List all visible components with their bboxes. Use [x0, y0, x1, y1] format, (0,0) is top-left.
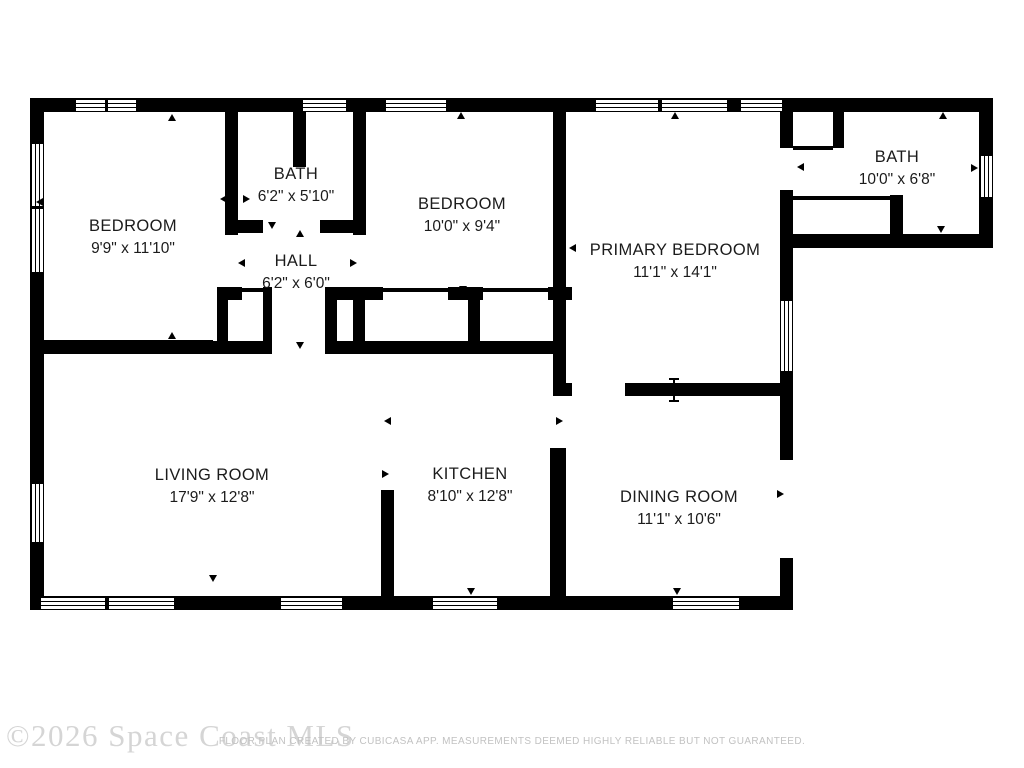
- window: [31, 483, 44, 543]
- room-label-primary-bedroom: PRIMARY BEDROOM 11'1" x 14'1": [590, 241, 760, 282]
- room-dimensions: 10'0" x 6'8": [859, 171, 935, 189]
- marker-icon: [168, 114, 176, 121]
- room-label-bath2: BATH 10'0" x 6'8": [859, 148, 935, 189]
- tub-edge: [793, 196, 890, 200]
- marker-icon: [939, 112, 947, 119]
- room-name: LIVING ROOM: [155, 466, 269, 485]
- wall-closet-small-bottom: [213, 341, 272, 354]
- wall-bath2-closet-stub: [833, 110, 844, 148]
- room-label-bedroom1: BEDROOM 9'9" x 11'10": [89, 217, 177, 258]
- marker-icon: [777, 490, 784, 498]
- wall-kitchen-stub: [381, 490, 394, 596]
- marker-icon: [36, 468, 43, 476]
- room-name: BATH: [859, 148, 935, 167]
- wall-band-b: [325, 287, 383, 300]
- marker-icon: [467, 588, 475, 595]
- marker-icon: [569, 244, 576, 252]
- marker-icon: [243, 195, 250, 203]
- bath2-closet-door: [793, 146, 833, 150]
- marker-icon: [36, 198, 43, 206]
- room-label-hall: HALL 6'2" x 6'0": [262, 252, 330, 293]
- marker-icon: [350, 259, 357, 267]
- marker-icon: [238, 259, 245, 267]
- window: [740, 99, 783, 112]
- wall-bedroom1-bottom: [30, 340, 213, 354]
- window: [780, 300, 793, 372]
- room-label-kitchen: KITCHEN 8'10" x 12'8": [427, 465, 512, 506]
- marker-icon: [459, 286, 467, 293]
- marker-icon: [384, 417, 391, 425]
- marker-icon: [556, 417, 563, 425]
- marker-icon: [797, 163, 804, 171]
- wall-bath2-entry-upper: [780, 110, 793, 148]
- wall-bedroom1-right: [225, 110, 238, 235]
- wall-primary-bottom: [625, 383, 793, 396]
- room-label-dining-room: DINING ROOM 11'1" x 10'6": [620, 488, 738, 529]
- marker-icon: [220, 195, 227, 203]
- room-dimensions: 8'10" x 12'8": [427, 488, 512, 506]
- wall-wing-bottom: [780, 234, 993, 248]
- marker-icon: [296, 342, 304, 349]
- room-name: BATH: [258, 165, 334, 184]
- marker-icon: [937, 226, 945, 233]
- room-name: KITCHEN: [427, 465, 512, 484]
- room-label-living-room: LIVING ROOM 17'9" x 12'8": [155, 466, 269, 507]
- wall-bath2-entry-lower: [780, 190, 793, 248]
- marker-icon: [209, 575, 217, 582]
- window: [280, 597, 343, 610]
- room-dimensions: 11'1" x 10'6": [620, 511, 738, 529]
- wall-primary-bottom-stub: [553, 383, 572, 396]
- wall-bath1-divider: [293, 110, 306, 167]
- room-name: DINING ROOM: [620, 488, 738, 507]
- room-dimensions: 6'2" x 5'10": [258, 188, 334, 206]
- window: [31, 143, 44, 273]
- window: [108, 597, 175, 610]
- window: [40, 597, 106, 610]
- window: [385, 99, 447, 112]
- room-name: BEDROOM: [418, 195, 506, 214]
- wall-bedroom2-left: [353, 110, 366, 235]
- marker-icon: [671, 112, 679, 119]
- room-dimensions: 6'2" x 6'0": [262, 275, 330, 293]
- window: [432, 597, 498, 610]
- room-dimensions: 9'9" x 11'10": [89, 240, 177, 258]
- window: [672, 597, 740, 610]
- marker-icon: [971, 164, 978, 172]
- wall-tub-right: [890, 195, 903, 248]
- marker-icon: [673, 588, 681, 595]
- marker-icon: [382, 470, 389, 478]
- wall-divider-upper: [553, 110, 566, 392]
- floor-plan: BEDROOM 9'9" x 11'10" BATH 6'2" x 5'10" …: [0, 0, 1024, 768]
- wall-divider-lower: [550, 448, 566, 596]
- closet-a-door: [383, 288, 448, 292]
- wall-closet-row-bottom: [325, 341, 566, 354]
- window: [75, 99, 137, 112]
- room-name: HALL: [262, 252, 330, 271]
- closet-b-door: [483, 288, 548, 292]
- room-name: PRIMARY BEDROOM: [590, 241, 760, 260]
- marker-icon: [268, 222, 276, 229]
- room-dimensions: 11'1" x 14'1": [590, 264, 760, 282]
- marker-icon: [457, 112, 465, 119]
- marker-icon: [296, 230, 304, 237]
- room-dimensions: 10'0" x 9'4": [418, 218, 506, 236]
- window: [980, 155, 993, 198]
- marker-icon: [168, 332, 176, 339]
- window: [302, 99, 347, 112]
- wall-right-lower: [780, 558, 793, 610]
- wall-top: [30, 98, 993, 112]
- wall-bath1-bottom-right: [320, 220, 366, 233]
- window: [595, 99, 728, 112]
- disclaimer-text: FLOOR PLAN CREATED BY CUBICASA APP. MEAS…: [0, 736, 1024, 747]
- room-dimensions: 17'9" x 12'8": [155, 489, 269, 507]
- room-name: BEDROOM: [89, 217, 177, 236]
- room-label-bedroom2: BEDROOM 10'0" x 9'4": [418, 195, 506, 236]
- room-label-bath1: BATH 6'2" x 5'10": [258, 165, 334, 206]
- wall-bath1-bottom-left: [225, 220, 263, 233]
- door-symbol: [673, 378, 675, 402]
